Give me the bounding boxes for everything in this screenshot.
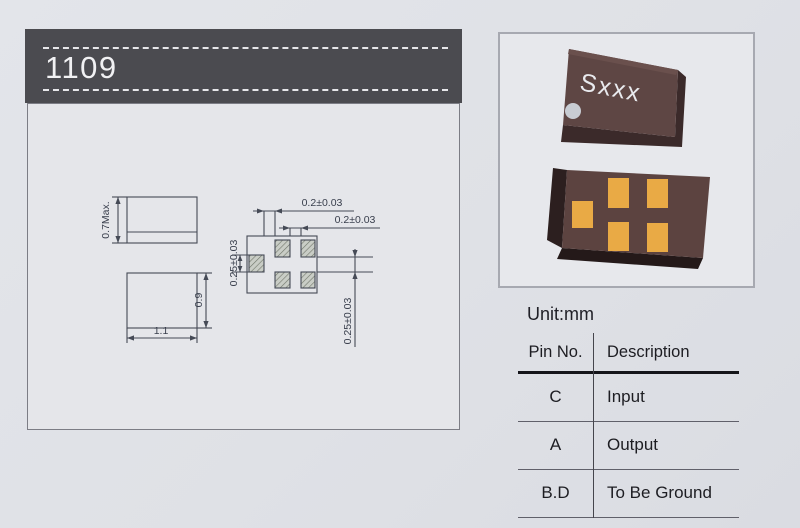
pad-bottom-middle xyxy=(275,272,290,288)
header-dashed-line-bottom xyxy=(43,89,448,91)
drawing-panel: 0.7Max. 0.9 1.1 0.2±0.03 0.2±0.03 0.25±0… xyxy=(27,103,460,430)
table-header-row: Pin No. Description xyxy=(518,333,739,371)
chip-renders: Sxxx xyxy=(500,34,753,286)
pin-cell: B.D xyxy=(518,483,593,503)
part-number-title: 1109 xyxy=(45,50,118,86)
pad-left xyxy=(249,255,264,272)
product-photo-panel: Sxxx xyxy=(498,32,755,288)
pin-no-header: Pin No. xyxy=(518,343,593,362)
description-cell: Input xyxy=(593,387,739,407)
pin-cell: C xyxy=(518,387,593,407)
header-dashed-line-top xyxy=(43,47,448,49)
gold-pad-left xyxy=(572,201,593,228)
part-number-header: 1109 xyxy=(25,29,462,103)
technical-drawing xyxy=(28,104,459,429)
dim-package-depth: 0.9 xyxy=(193,285,205,315)
description-header: Description xyxy=(593,343,739,362)
pad-top-right xyxy=(301,240,315,257)
dim-package-height: 0.7Max. xyxy=(100,195,112,245)
chip-bottom-photo xyxy=(547,168,710,269)
dim-package-width: 1.1 xyxy=(146,325,176,337)
gold-pad-bottom-right xyxy=(647,223,668,252)
table-row: C Input xyxy=(518,374,739,422)
table-row: B.D To Be Ground xyxy=(518,470,739,518)
chip-top-photo: Sxxx xyxy=(561,49,686,147)
description-cell: To Be Ground xyxy=(593,483,739,503)
dim-pad-height: 0.25±0.03 xyxy=(228,235,240,291)
gold-pad-top-middle xyxy=(608,178,629,208)
unit-label: Unit:mm xyxy=(527,304,594,325)
pin-cell: A xyxy=(518,435,593,455)
description-cell: Output xyxy=(593,435,739,455)
table-row: A Output xyxy=(518,422,739,470)
pin-table: Pin No. Description C Input A Output B.D… xyxy=(518,333,739,518)
gold-pad-bottom-middle xyxy=(608,222,629,251)
pin1-marker-dot xyxy=(565,103,581,119)
pad-top-middle xyxy=(275,240,290,257)
table-column-divider xyxy=(593,333,594,518)
datasheet-page: { "header": { "title": "1109" }, "drawin… xyxy=(0,0,800,528)
pad-bottom-right xyxy=(301,272,315,288)
dim-pad-gap-columns: 0.2±0.03 xyxy=(325,214,385,226)
gold-pad-top-right xyxy=(647,179,668,208)
land-pattern-view xyxy=(232,209,380,348)
dim-pad-gap-left: 0.2±0.03 xyxy=(292,197,352,209)
dim-pad-row-gap: 0.25±0.03 xyxy=(342,293,354,349)
side-view xyxy=(112,197,197,243)
